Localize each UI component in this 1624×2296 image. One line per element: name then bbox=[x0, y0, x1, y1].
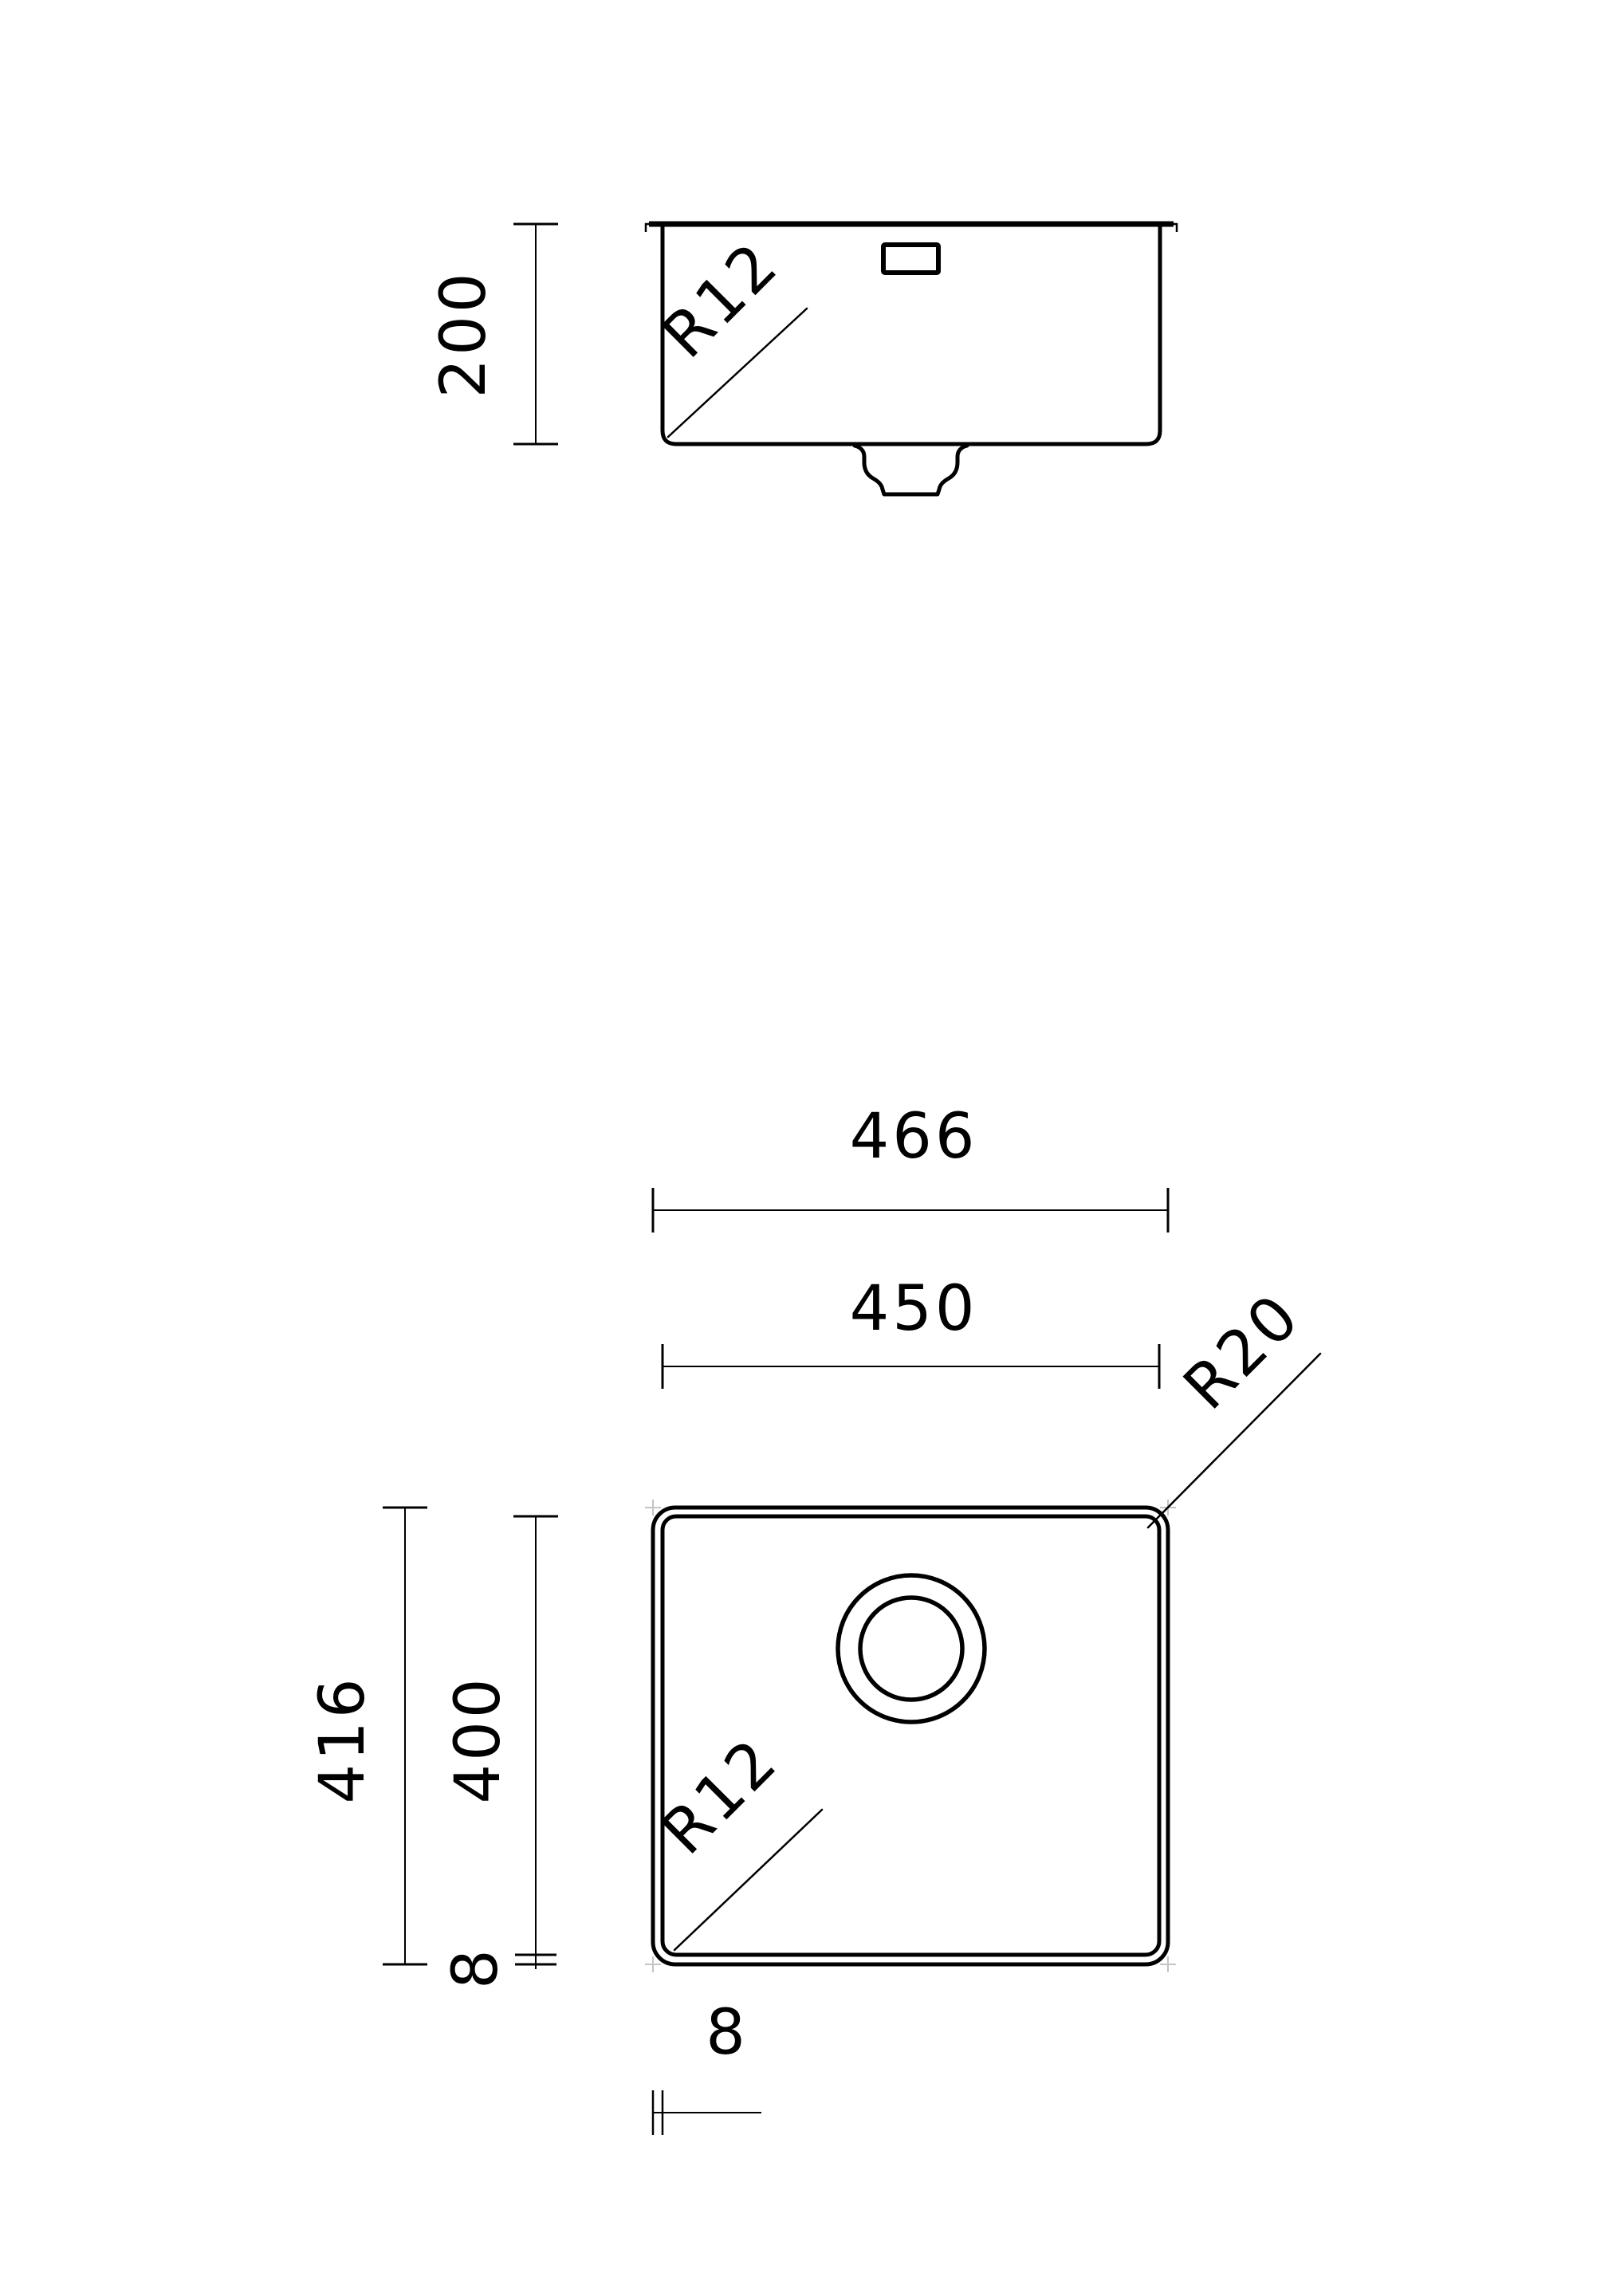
plan-view: R20 R12 466 450 416 bbox=[307, 1101, 1320, 2135]
side-view: R12 200 bbox=[428, 224, 1177, 494]
side-height-dimension: 200 bbox=[428, 224, 558, 444]
plan-rim-bottom-dimension: 8 bbox=[653, 1997, 761, 2135]
plan-outer-width-dim-label: 466 bbox=[850, 1101, 978, 1173]
sink-technical-drawing: R12 200 R20 R12 bbox=[0, 0, 1624, 2296]
side-height-dim-label: 200 bbox=[428, 270, 500, 399]
plan-r20-label: R20 bbox=[1170, 1280, 1315, 1424]
side-r12-label: R12 bbox=[649, 228, 793, 372]
plan-rim-bottom-dim-label: 8 bbox=[706, 1997, 749, 2069]
plan-inner-height-dim-label: 400 bbox=[442, 1676, 514, 1804]
plan-r12-label: R12 bbox=[648, 1724, 792, 1869]
side-drain-fitting bbox=[855, 446, 967, 494]
side-overflow-hole bbox=[883, 245, 938, 273]
drawing-canvas: R12 200 R20 R12 bbox=[0, 0, 1624, 2296]
plan-rim-side-dim-label: 8 bbox=[440, 1946, 512, 1989]
plan-outer-width-dimension: 466 bbox=[653, 1101, 1168, 1233]
plan-inner-width-dimension: 450 bbox=[663, 1273, 1159, 1389]
plan-outer-height-dim-label: 416 bbox=[307, 1676, 379, 1804]
plan-inner-width-dim-label: 450 bbox=[850, 1273, 978, 1345]
plan-outer-height-dimension: 416 bbox=[307, 1508, 427, 1964]
plan-inner-height-dimension: 400 8 bbox=[440, 1516, 558, 1989]
plan-drain-inner-circle bbox=[860, 1598, 962, 1700]
